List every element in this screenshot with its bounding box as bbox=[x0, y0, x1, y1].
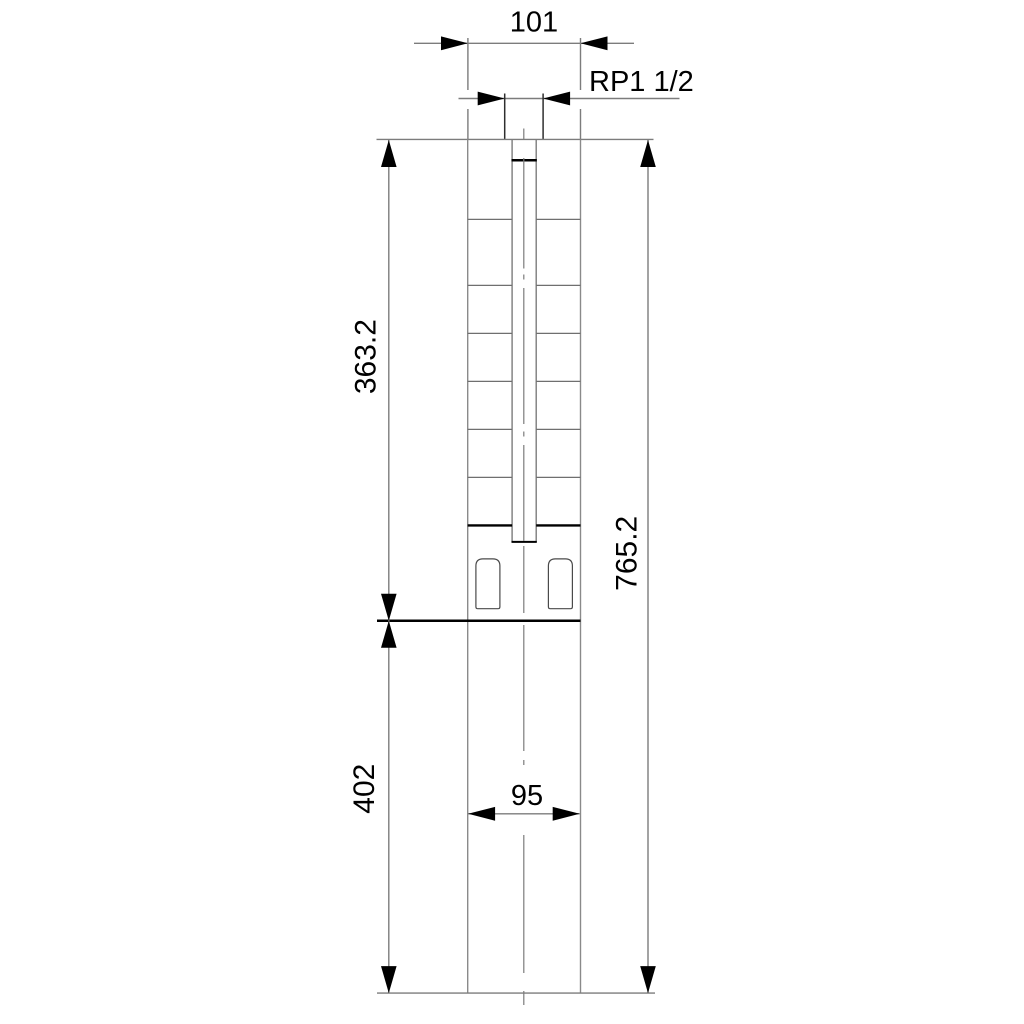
svg-text:765.2: 765.2 bbox=[611, 516, 644, 591]
svg-text:101: 101 bbox=[510, 7, 558, 39]
svg-text:RP1 1/2: RP1 1/2 bbox=[589, 66, 694, 98]
svg-text:402: 402 bbox=[348, 764, 381, 814]
svg-text:95: 95 bbox=[511, 780, 543, 812]
svg-text:363.2: 363.2 bbox=[349, 319, 382, 394]
